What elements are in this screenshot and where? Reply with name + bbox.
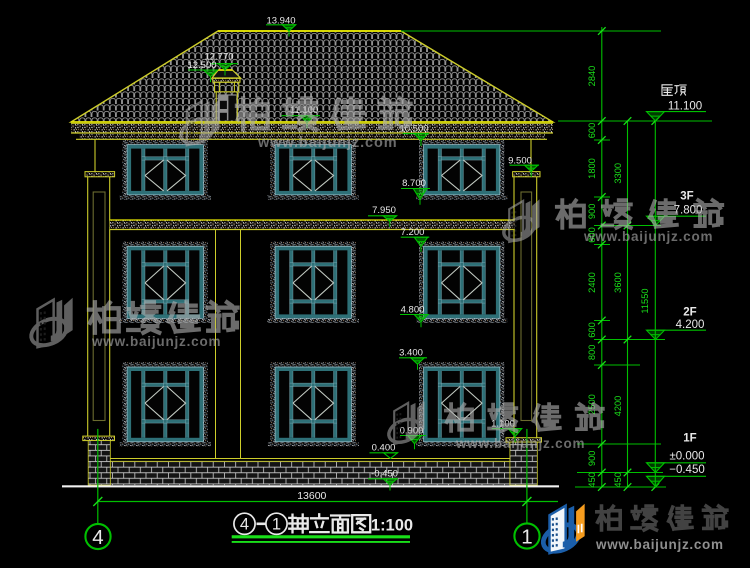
svg-text:900: 900 — [587, 451, 597, 467]
svg-text:450: 450 — [587, 472, 597, 488]
svg-text:3F: 3F — [680, 191, 693, 203]
svg-text:1: 1 — [272, 516, 281, 534]
svg-text:900: 900 — [587, 204, 597, 220]
svg-text:www.baijunjz.com: www.baijunjz.com — [91, 334, 221, 349]
svg-text:1:100: 1:100 — [371, 517, 413, 535]
svg-text:±0.000: ±0.000 — [669, 451, 704, 463]
svg-text:www.baijunjz.com: www.baijunjz.com — [583, 229, 713, 244]
svg-text:600: 600 — [587, 322, 597, 338]
svg-text:2840: 2840 — [587, 66, 597, 87]
svg-text:4200: 4200 — [613, 396, 623, 417]
svg-text:11.100: 11.100 — [668, 101, 702, 113]
svg-text:7.200: 7.200 — [401, 227, 425, 238]
svg-text:1: 1 — [521, 526, 532, 549]
svg-text:-0.450: -0.450 — [371, 468, 398, 479]
svg-text:13600: 13600 — [297, 490, 326, 502]
svg-text:3600: 3600 — [613, 272, 623, 293]
svg-text:2400: 2400 — [587, 272, 597, 293]
svg-text:800: 800 — [587, 345, 597, 361]
svg-text:0.400: 0.400 — [372, 442, 396, 453]
svg-text:3.400: 3.400 — [399, 347, 423, 358]
svg-text:1F: 1F — [683, 433, 696, 445]
svg-text:4: 4 — [240, 516, 249, 534]
svg-text:8.700: 8.700 — [402, 178, 426, 189]
svg-text:600: 600 — [587, 123, 597, 139]
svg-text:2F: 2F — [683, 307, 696, 319]
svg-text:−0.450: −0.450 — [669, 464, 705, 476]
svg-text:www.baijunjz.com: www.baijunjz.com — [257, 135, 398, 151]
svg-text:11550: 11550 — [640, 288, 650, 313]
svg-text:www.baijunjz.com: www.baijunjz.com — [595, 537, 724, 552]
svg-text:4.800: 4.800 — [401, 304, 425, 315]
svg-text:12.500: 12.500 — [187, 60, 216, 71]
svg-text:450: 450 — [613, 472, 623, 488]
svg-text:1800: 1800 — [587, 158, 597, 179]
svg-text:3300: 3300 — [613, 163, 623, 184]
svg-text:4: 4 — [92, 526, 103, 549]
svg-text:4.200: 4.200 — [676, 319, 705, 331]
svg-text:7.950: 7.950 — [372, 205, 396, 216]
svg-text:www.baijunjz.com: www.baijunjz.com — [455, 436, 585, 451]
